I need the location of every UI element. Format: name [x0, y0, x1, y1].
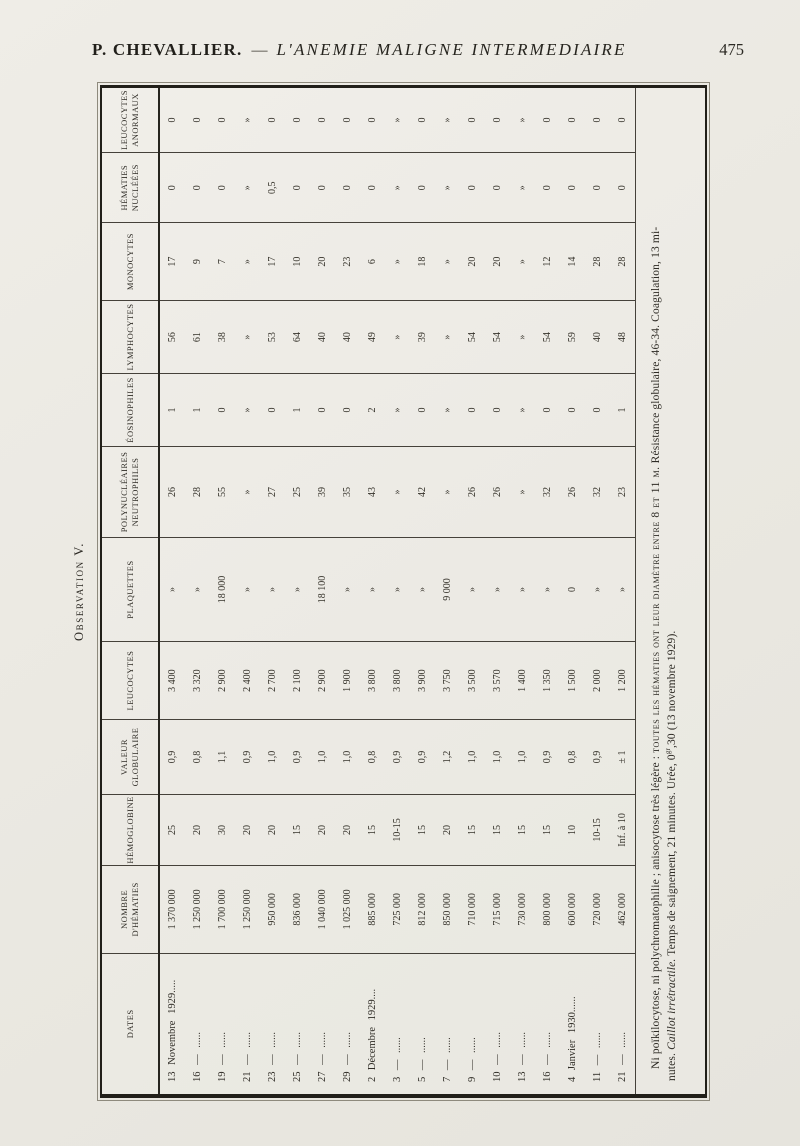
cell-nombre-hematies: 850 000 [435, 866, 460, 954]
footnote-text-5: ,30 (13 novembre 1929). [666, 631, 678, 748]
cell-valeur-globulaire: 1,0 [485, 720, 510, 794]
cell-plaquettes: » [410, 538, 435, 642]
cell-eosinophiles: 1 [185, 374, 210, 446]
cell-hematies-nucleees: 0 [335, 152, 360, 222]
cell-polynucleaires: 26 [159, 446, 185, 538]
column-header-hematies-nucleees: HÉMATIES NUCLÉÉES [102, 152, 159, 222]
cell-leucocytes: 2 700 [260, 641, 285, 719]
table-row: 19 — ...... 1 700 000 30 1,1 2 900 18 00… [210, 88, 235, 1094]
table-row: 21 — ...... 1 250 000 20 0,9 2 400 » » »… [235, 88, 260, 1094]
cell-valeur-globulaire: 1,0 [310, 720, 335, 794]
column-header-nombre-hematies: NOMBRE D'HÉMATIES [102, 866, 159, 954]
cell-monocytes: 10 [285, 223, 310, 300]
page-number: 475 [719, 40, 744, 60]
cell-hematies-nucleees: 0 [310, 152, 335, 222]
cell-polynucleaires: 32 [535, 446, 560, 538]
column-header-monocytes: MONOCYTES [102, 223, 159, 300]
cell-plaquettes: » [460, 538, 485, 642]
cell-hemoglobine: 15 [360, 794, 385, 865]
cell-hematies-nucleees: » [385, 152, 410, 222]
cell-plaquettes: » [485, 538, 510, 642]
cell-leucocytes: 3 800 [385, 641, 410, 719]
cell-hematies-nucleees: 0 [410, 152, 435, 222]
cell-plaquettes: 0 [560, 538, 585, 642]
cell-hematies-nucleees: 0 [560, 152, 585, 222]
cell-date: 21 — ...... [235, 953, 260, 1094]
cell-date: 27 — ...... [310, 953, 335, 1094]
cell-leucocytes: 3 800 [360, 641, 385, 719]
cell-polynucleaires: 25 [285, 446, 310, 538]
cell-nombre-hematies: 1 250 000 [185, 866, 210, 954]
cell-nombre-hematies: 950 000 [260, 866, 285, 954]
column-header-dates: DATES [102, 953, 159, 1094]
cell-hematies-nucleees: 0 [185, 152, 210, 222]
cell-hemoglobine: 10-15 [385, 794, 410, 865]
cell-leucocytes: 1 500 [560, 641, 585, 719]
cell-leucocytes-anormaux: » [435, 88, 460, 152]
cell-polynucleaires: 26 [485, 446, 510, 538]
cell-nombre-hematies: 885 000 [360, 866, 385, 954]
cell-monocytes: 28 [585, 223, 610, 300]
cell-eosinophiles: 1 [159, 374, 185, 446]
cell-leucocytes-anormaux: » [235, 88, 260, 152]
cell-eosinophiles: 0 [335, 374, 360, 446]
cell-nombre-hematies: 710 000 [460, 866, 485, 954]
footnote-text-3: nutes. [666, 1050, 678, 1081]
cell-leucocytes-anormaux: 0 [159, 88, 185, 152]
cell-hemoglobine: 20 [310, 794, 335, 865]
cell-eosinophiles: 0 [585, 374, 610, 446]
cell-hematies-nucleees: 0 [285, 152, 310, 222]
cell-valeur-globulaire: 0,9 [235, 720, 260, 794]
cell-eosinophiles: 0 [310, 374, 335, 446]
table-row: 13 — ...... 730 000 15 1,0 1 400 » » » »… [510, 88, 535, 1094]
cell-lymphocytes: 38 [210, 300, 235, 373]
cell-nombre-hematies: 836 000 [285, 866, 310, 954]
cell-polynucleaires: 26 [560, 446, 585, 538]
cell-polynucleaires: 39 [310, 446, 335, 538]
footnote-text-2: Résistance globulaire, 46-34. Coagulatio… [650, 227, 662, 467]
cell-plaquettes: » [235, 538, 260, 642]
rotated-table-block: Observation V. DATES NOMBRE D'HÉMATIES H… [72, 85, 707, 1098]
cell-eosinophiles: 0 [460, 374, 485, 446]
cell-date: 13 — ...... [510, 953, 535, 1094]
cell-nombre-hematies: 720 000 [585, 866, 610, 954]
cell-hemoglobine: 20 [260, 794, 285, 865]
table-footnote: Ni poïkilocytose, ni polychromatophilie … [636, 88, 705, 1094]
cell-hemoglobine: 15 [410, 794, 435, 865]
cell-eosinophiles: » [385, 374, 410, 446]
cell-hematies-nucleees: 0,5 [260, 152, 285, 222]
cell-hemoglobine: 20 [435, 794, 460, 865]
cell-hematies-nucleees: 0 [485, 152, 510, 222]
table-row: 16 — ...... 1 250 000 20 0,8 3 320 » 28 … [185, 88, 210, 1094]
cell-monocytes: 18 [410, 223, 435, 300]
cell-polynucleaires: 32 [585, 446, 610, 538]
cell-leucocytes-anormaux: » [510, 88, 535, 152]
table-row: 10 — ...... 715 000 15 1,0 3 570 » 26 0 … [485, 88, 510, 1094]
table-row: 16 — ...... 800 000 15 0,9 1 350 » 32 0 … [535, 88, 560, 1094]
cell-leucocytes-anormaux: 0 [335, 88, 360, 152]
cell-hemoglobine: 20 [185, 794, 210, 865]
cell-nombre-hematies: 600 000 [560, 866, 585, 954]
cell-eosinophiles: 0 [560, 374, 585, 446]
cell-hematies-nucleees: 0 [585, 152, 610, 222]
cell-date: 11 — ...... [585, 953, 610, 1094]
cell-polynucleaires: 42 [410, 446, 435, 538]
cell-valeur-globulaire: 1,2 [435, 720, 460, 794]
cell-hemoglobine: 10-15 [585, 794, 610, 865]
cell-monocytes: » [510, 223, 535, 300]
cell-plaquettes: » [335, 538, 360, 642]
cell-nombre-hematies: 1 700 000 [210, 866, 235, 954]
cell-leucocytes: 1 350 [535, 641, 560, 719]
cell-monocytes: » [385, 223, 410, 300]
cell-hematies-nucleees: 0 [210, 152, 235, 222]
cell-monocytes: 14 [560, 223, 585, 300]
cell-polynucleaires: 35 [335, 446, 360, 538]
cell-plaquettes: 18 000 [210, 538, 235, 642]
cell-date: 4 Janvier 1930...... [560, 953, 585, 1094]
cell-lymphocytes: 54 [460, 300, 485, 373]
cell-date: 13 Novembre 1929..... [159, 953, 185, 1094]
footnote-smallcaps: toutes les hématies ont leur diamètre en… [650, 466, 662, 752]
cell-leucocytes-anormaux: 0 [560, 88, 585, 152]
cell-monocytes: 17 [260, 223, 285, 300]
cell-hemoglobine: 20 [335, 794, 360, 865]
table-row: 27 — ...... 1 040 000 20 1,0 2 900 18 10… [310, 88, 335, 1094]
table-row: 9 — ...... 710 000 15 1,0 3 500 » 26 0 5… [460, 88, 485, 1094]
cell-leucocytes: 3 400 [159, 641, 185, 719]
cell-valeur-globulaire: 0,9 [410, 720, 435, 794]
cell-nombre-hematies: 1 040 000 [310, 866, 335, 954]
footnote-italic: Caillot irrétractile. [666, 959, 678, 1050]
cell-leucocytes-anormaux: 0 [360, 88, 385, 152]
cell-date: 21 — ...... [610, 953, 636, 1094]
cell-valeur-globulaire: 0,8 [360, 720, 385, 794]
cell-lymphocytes: 59 [560, 300, 585, 373]
cell-date: 7 — ...... [435, 953, 460, 1094]
cell-valeur-globulaire: 1,0 [260, 720, 285, 794]
cell-monocytes: » [235, 223, 260, 300]
cell-nombre-hematies: 462 000 [610, 866, 636, 954]
cell-monocytes: 20 [485, 223, 510, 300]
cell-nombre-hematies: 812 000 [410, 866, 435, 954]
footnote-superscript: gr [664, 748, 672, 754]
cell-nombre-hematies: 725 000 [385, 866, 410, 954]
cell-monocytes: 23 [335, 223, 360, 300]
table-row: 2 Décembre 1929.... 885 000 15 0,8 3 800… [360, 88, 385, 1094]
cell-leucocytes: 3 750 [435, 641, 460, 719]
cell-hemoglobine: 15 [535, 794, 560, 865]
cell-eosinophiles: 1 [285, 374, 310, 446]
table-row: 7 — ...... 850 000 20 1,2 3 750 9 000 » … [435, 88, 460, 1094]
cell-plaquettes: » [285, 538, 310, 642]
cell-date: 5 — ...... [410, 953, 435, 1094]
cell-hemoglobine: Inf. à 10 [610, 794, 636, 865]
cell-polynucleaires: 26 [460, 446, 485, 538]
table-body: 13 Novembre 1929..... 1 370 000 25 0,9 3… [159, 88, 636, 1094]
cell-polynucleaires: 55 [210, 446, 235, 538]
cell-monocytes: 17 [159, 223, 185, 300]
observation-title: Observation V. [72, 85, 92, 1098]
cell-hemoglobine: 10 [560, 794, 585, 865]
cell-date: 29 — ...... [335, 953, 360, 1094]
cell-date: 16 — ...... [535, 953, 560, 1094]
cell-lymphocytes: 40 [585, 300, 610, 373]
cell-monocytes: » [435, 223, 460, 300]
column-header-hemoglobine: HÉMOGLOBINE [102, 794, 159, 865]
cell-date: 23 — ...... [260, 953, 285, 1094]
cell-leucocytes: 2 000 [585, 641, 610, 719]
cell-lymphocytes: » [510, 300, 535, 373]
cell-hematies-nucleees: 0 [360, 152, 385, 222]
cell-eosinophiles: » [510, 374, 535, 446]
cell-lymphocytes: 40 [310, 300, 335, 373]
table-header-row: DATES NOMBRE D'HÉMATIES HÉMOGLOBINE VALE… [102, 88, 159, 1094]
cell-hemoglobine: 15 [510, 794, 535, 865]
cell-leucocytes-anormaux: 0 [535, 88, 560, 152]
cell-valeur-globulaire: 1,0 [335, 720, 360, 794]
cell-lymphocytes: 49 [360, 300, 385, 373]
cell-plaquettes: » [159, 538, 185, 642]
cell-nombre-hematies: 800 000 [535, 866, 560, 954]
column-header-valeur-globulaire: VALEUR GLOBULAIRE [102, 720, 159, 794]
cell-hemoglobine: 20 [235, 794, 260, 865]
hematology-table: DATES NOMBRE D'HÉMATIES HÉMOGLOBINE VALE… [102, 88, 636, 1094]
table-row: 3 — ...... 725 000 10-15 0,9 3 800 » » »… [385, 88, 410, 1094]
cell-nombre-hematies: 1 250 000 [235, 866, 260, 954]
cell-hemoglobine: 15 [285, 794, 310, 865]
cell-leucocytes-anormaux: 0 [410, 88, 435, 152]
cell-leucocytes-anormaux: 0 [210, 88, 235, 152]
table-frame: DATES NOMBRE D'HÉMATIES HÉMOGLOBINE VALE… [100, 85, 707, 1098]
table-row: 25 — ...... 836 000 15 0,9 2 100 » 25 1 … [285, 88, 310, 1094]
journal-page: { "page_header": { "author": "P. CHEVALL… [0, 0, 800, 1146]
cell-leucocytes-anormaux: 0 [260, 88, 285, 152]
cell-leucocytes: 1 900 [335, 641, 360, 719]
cell-valeur-globulaire: ± 1 [610, 720, 636, 794]
table-row: 11 — ...... 720 000 10-15 0,9 2 000 » 32… [585, 88, 610, 1094]
cell-eosinophiles: 0 [485, 374, 510, 446]
cell-leucocytes: 1 400 [510, 641, 535, 719]
cell-lymphocytes: » [435, 300, 460, 373]
cell-hematies-nucleees: 0 [535, 152, 560, 222]
column-header-plaquettes: PLAQUETTES [102, 538, 159, 642]
cell-hematies-nucleees: 0 [610, 152, 636, 222]
cell-polynucleaires: » [385, 446, 410, 538]
cell-nombre-hematies: 715 000 [485, 866, 510, 954]
cell-leucocytes-anormaux: 0 [310, 88, 335, 152]
cell-monocytes: 12 [535, 223, 560, 300]
cell-hemoglobine: 25 [159, 794, 185, 865]
cell-lymphocytes: 61 [185, 300, 210, 373]
cell-monocytes: 28 [610, 223, 636, 300]
author-name: P. CHEVALLIER. [92, 40, 242, 60]
cell-date: 25 — ...... [285, 953, 310, 1094]
cell-lymphocytes: 39 [410, 300, 435, 373]
cell-eosinophiles: 0 [410, 374, 435, 446]
cell-eosinophiles: 0 [260, 374, 285, 446]
cell-lymphocytes: 40 [335, 300, 360, 373]
cell-hematies-nucleees: » [435, 152, 460, 222]
cell-eosinophiles: » [435, 374, 460, 446]
masthead-dash: — [251, 42, 267, 60]
cell-valeur-globulaire: 0,8 [185, 720, 210, 794]
cell-eosinophiles: 2 [360, 374, 385, 446]
cell-nombre-hematies: 730 000 [510, 866, 535, 954]
cell-valeur-globulaire: 0,9 [585, 720, 610, 794]
cell-eosinophiles: 1 [610, 374, 636, 446]
cell-lymphocytes: 64 [285, 300, 310, 373]
table-row: 29 — ...... 1 025 000 20 1,0 1 900 » 35 … [335, 88, 360, 1094]
cell-polynucleaires: 43 [360, 446, 385, 538]
cell-date: 3 — ...... [385, 953, 410, 1094]
article-title: L'ANEMIE MALIGNE INTERMEDIAIRE [276, 40, 626, 60]
footnote-text-4: Temps de saignement, 21 minutes. Urée, 0 [666, 754, 678, 958]
cell-valeur-globulaire: 0,9 [159, 720, 185, 794]
cell-leucocytes: 3 570 [485, 641, 510, 719]
footnote-text-1: Ni poïkilocytose, ni polychromatophilie … [650, 753, 662, 1069]
cell-leucocytes-anormaux: 0 [610, 88, 636, 152]
footnote-line-2: nutes. Caillot irrétractile. Temps de sa… [665, 98, 681, 1081]
footnote-line-1: Ni poïkilocytose, ni polychromatophilie … [649, 98, 665, 1081]
cell-valeur-globulaire: 0,9 [385, 720, 410, 794]
cell-hematies-nucleees: » [510, 152, 535, 222]
cell-plaquettes: » [535, 538, 560, 642]
cell-polynucleaires: 28 [185, 446, 210, 538]
cell-polynucleaires: » [510, 446, 535, 538]
table-row: 4 Janvier 1930...... 600 000 10 0,8 1 50… [560, 88, 585, 1094]
cell-valeur-globulaire: 0,9 [535, 720, 560, 794]
table-row: 13 Novembre 1929..... 1 370 000 25 0,9 3… [159, 88, 185, 1094]
column-header-eosinophiles: ÉOSINOPHILES [102, 374, 159, 446]
cell-leucocytes: 2 100 [285, 641, 310, 719]
table-row: 5 — ...... 812 000 15 0,9 3 900 » 42 0 3… [410, 88, 435, 1094]
cell-monocytes: 6 [360, 223, 385, 300]
cell-valeur-globulaire: 0,8 [560, 720, 585, 794]
cell-hemoglobine: 15 [485, 794, 510, 865]
column-header-polynucleaires: POLYNUCLÉAIRES NEUTROPHILES [102, 446, 159, 538]
cell-date: 19 — ...... [210, 953, 235, 1094]
cell-nombre-hematies: 1 025 000 [335, 866, 360, 954]
cell-lymphocytes: 56 [159, 300, 185, 373]
column-header-leucocytes-anormaux: LEUCOCYTES ANORMAUX [102, 88, 159, 152]
cell-date: 2 Décembre 1929.... [360, 953, 385, 1094]
cell-plaquettes: » [185, 538, 210, 642]
cell-leucocytes-anormaux: 0 [285, 88, 310, 152]
cell-hemoglobine: 30 [210, 794, 235, 865]
cell-valeur-globulaire: 0,9 [285, 720, 310, 794]
cell-hemoglobine: 15 [460, 794, 485, 865]
cell-polynucleaires: » [235, 446, 260, 538]
cell-date: 10 — ...... [485, 953, 510, 1094]
cell-leucocytes: 2 900 [210, 641, 235, 719]
cell-leucocytes-anormaux: 0 [485, 88, 510, 152]
cell-plaquettes: » [385, 538, 410, 642]
cell-leucocytes-anormaux: 0 [585, 88, 610, 152]
cell-plaquettes: » [510, 538, 535, 642]
cell-plaquettes: » [610, 538, 636, 642]
cell-monocytes: 9 [185, 223, 210, 300]
cell-leucocytes: 1 200 [610, 641, 636, 719]
masthead: P. CHEVALLIER. — L'ANEMIE MALIGNE INTERM… [92, 40, 744, 60]
cell-eosinophiles: 0 [535, 374, 560, 446]
cell-eosinophiles: » [235, 374, 260, 446]
cell-lymphocytes: 48 [610, 300, 636, 373]
cell-hematies-nucleees: 0 [460, 152, 485, 222]
cell-lymphocytes: 54 [535, 300, 560, 373]
cell-plaquettes: » [360, 538, 385, 642]
cell-eosinophiles: 0 [210, 374, 235, 446]
cell-plaquettes: 9 000 [435, 538, 460, 642]
cell-valeur-globulaire: 1,0 [460, 720, 485, 794]
column-header-leucocytes: LEUCOCYTES [102, 641, 159, 719]
cell-nombre-hematies: 1 370 000 [159, 866, 185, 954]
cell-lymphocytes: » [235, 300, 260, 373]
table-row: 21 — ...... 462 000 Inf. à 10 ± 1 1 200 … [610, 88, 636, 1094]
cell-valeur-globulaire: 1,1 [210, 720, 235, 794]
cell-lymphocytes: 53 [260, 300, 285, 373]
table-row: 23 — ...... 950 000 20 1,0 2 700 » 27 0 … [260, 88, 285, 1094]
cell-monocytes: 7 [210, 223, 235, 300]
cell-leucocytes: 3 320 [185, 641, 210, 719]
cell-leucocytes-anormaux: 0 [460, 88, 485, 152]
cell-leucocytes: 3 900 [410, 641, 435, 719]
cell-hematies-nucleees: 0 [159, 152, 185, 222]
cell-leucocytes: 3 500 [460, 641, 485, 719]
cell-leucocytes-anormaux: » [385, 88, 410, 152]
cell-valeur-globulaire: 1,0 [510, 720, 535, 794]
cell-monocytes: 20 [460, 223, 485, 300]
cell-date: 16 — ...... [185, 953, 210, 1094]
cell-polynucleaires: » [435, 446, 460, 538]
cell-monocytes: 20 [310, 223, 335, 300]
column-header-lymphocytes: LYMPHOCYTES [102, 300, 159, 373]
cell-leucocytes-anormaux: 0 [185, 88, 210, 152]
cell-polynucleaires: 23 [610, 446, 636, 538]
cell-lymphocytes: 54 [485, 300, 510, 373]
cell-polynucleaires: 27 [260, 446, 285, 538]
cell-leucocytes: 2 400 [235, 641, 260, 719]
cell-plaquettes: 18 100 [310, 538, 335, 642]
cell-hematies-nucleees: » [235, 152, 260, 222]
cell-plaquettes: » [260, 538, 285, 642]
cell-plaquettes: » [585, 538, 610, 642]
cell-leucocytes: 2 900 [310, 641, 335, 719]
cell-date: 9 — ...... [460, 953, 485, 1094]
cell-lymphocytes: » [385, 300, 410, 373]
